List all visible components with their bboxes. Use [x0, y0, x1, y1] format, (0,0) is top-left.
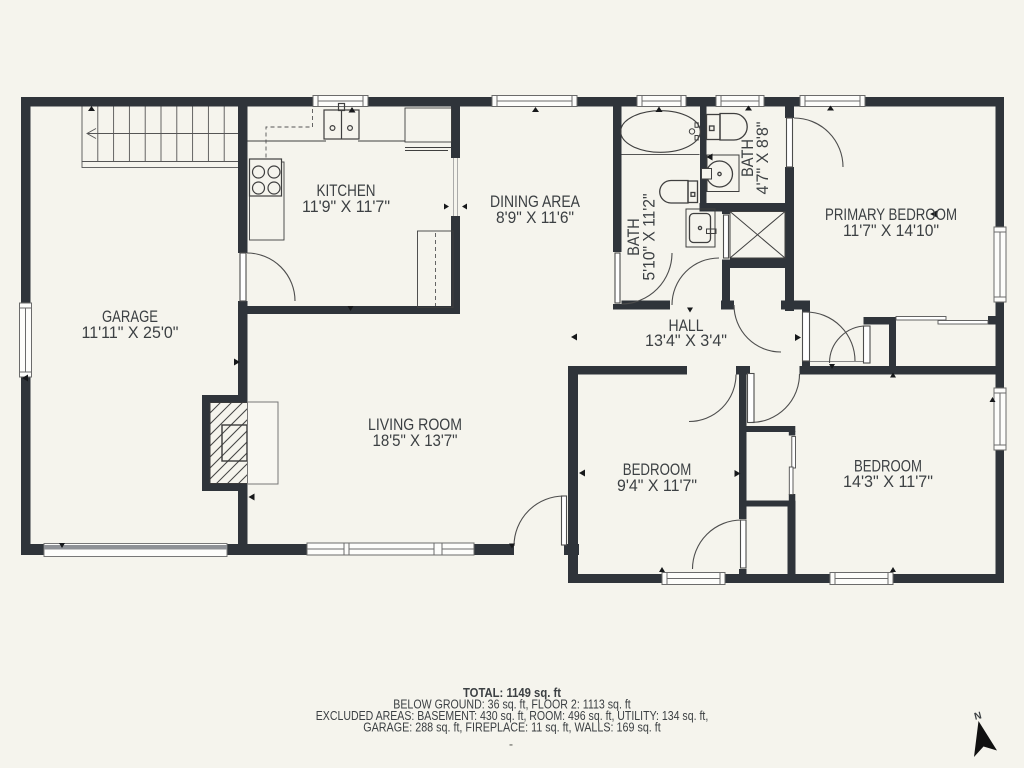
- svg-text:11'7" X 14'10": 11'7" X 14'10": [843, 222, 939, 240]
- svg-text:14'3" X 11'7": 14'3" X 11'7": [843, 473, 933, 491]
- svg-text:GARAGE: 288 sq. ft, FIREPLACE:: GARAGE: 288 sq. ft, FIREPLACE: 11 sq. ft…: [363, 720, 661, 735]
- svg-text:11'9" X 11'7": 11'9" X 11'7": [302, 198, 390, 216]
- svg-text:4'7" X 8'8": 4'7" X 8'8": [754, 121, 772, 194]
- svg-text:18'5" X 13'7": 18'5" X 13'7": [373, 432, 458, 450]
- svg-text:8'9" X 11'6": 8'9" X 11'6": [496, 209, 574, 227]
- svg-text:13'4" X 3'4": 13'4" X 3'4": [645, 332, 727, 350]
- svg-text:5'10" X 11'2": 5'10" X 11'2": [641, 193, 659, 280]
- svg-text:9'4" X 11'7": 9'4" X 11'7": [617, 477, 697, 495]
- svg-text:11'11" X 25'0": 11'11" X 25'0": [82, 324, 179, 342]
